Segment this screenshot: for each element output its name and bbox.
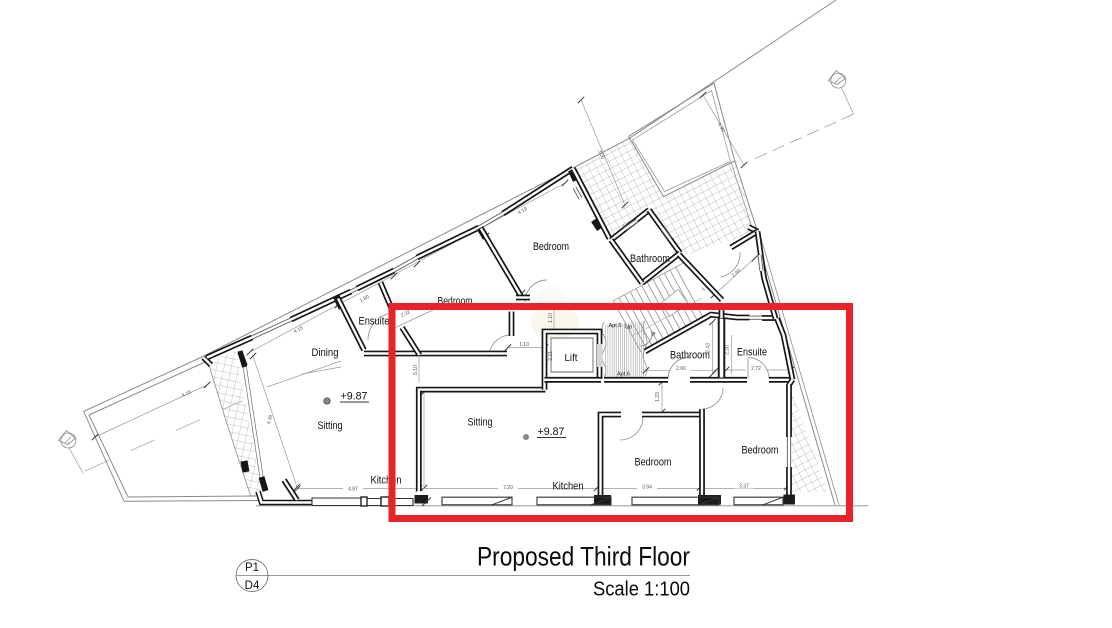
svg-text:3.94: 3.94 xyxy=(642,485,652,491)
svg-text:Lift: Lift xyxy=(565,353,578,364)
svg-text:Apt.6: Apt.6 xyxy=(617,372,630,378)
svg-text:4.87: 4.87 xyxy=(348,487,358,493)
svg-text:Bedroom: Bedroom xyxy=(635,457,672,469)
svg-text:Proposed Third Floor: Proposed Third Floor xyxy=(477,542,690,572)
svg-text:Sitting: Sitting xyxy=(468,417,493,429)
svg-text:1.10: 1.10 xyxy=(519,342,529,348)
svg-text:2.72: 2.72 xyxy=(751,366,761,372)
svg-text:D4: D4 xyxy=(245,580,260,592)
svg-text:2.66: 2.66 xyxy=(676,366,686,372)
svg-text:Apt.5: Apt.5 xyxy=(609,323,622,329)
svg-text:1.10: 1.10 xyxy=(548,313,554,323)
svg-text:Scale 1:100: Scale 1:100 xyxy=(593,579,690,601)
svg-text:Bedroom: Bedroom xyxy=(533,241,569,253)
svg-text:Bedroom: Bedroom xyxy=(742,445,779,457)
svg-text:7.20: 7.20 xyxy=(503,485,513,491)
svg-text:Bathroom: Bathroom xyxy=(670,350,710,362)
svg-text:5.10: 5.10 xyxy=(413,365,419,375)
svg-text:Up: Up xyxy=(625,325,632,331)
svg-text:Ensuite: Ensuite xyxy=(737,347,767,359)
svg-text:Kitchen: Kitchen xyxy=(371,475,402,487)
svg-text:1.23: 1.23 xyxy=(655,392,661,402)
svg-text:Kitchen: Kitchen xyxy=(553,481,584,493)
svg-text:3.37: 3.37 xyxy=(739,484,749,490)
svg-text:Bathroom: Bathroom xyxy=(630,253,670,265)
svg-text:Ensuite: Ensuite xyxy=(359,316,390,328)
svg-text:Dining: Dining xyxy=(312,347,339,359)
svg-text:+9.87: +9.87 xyxy=(538,426,565,438)
svg-text:P1: P1 xyxy=(245,562,259,574)
svg-text:2.20: 2.20 xyxy=(725,345,731,355)
svg-text:Sitting: Sitting xyxy=(318,420,343,432)
svg-text:+9.87: +9.87 xyxy=(341,391,368,403)
